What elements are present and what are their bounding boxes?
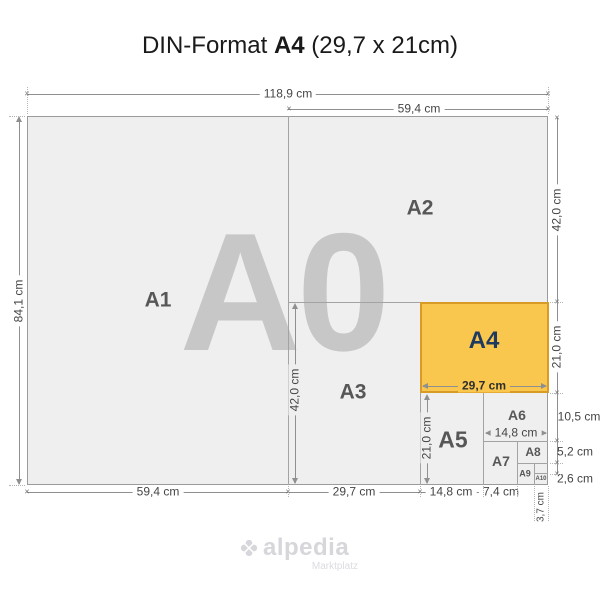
extension-line (534, 486, 535, 521)
extension-line (548, 87, 549, 114)
a1-label: A1 (145, 290, 172, 311)
dim-inner-a5-height: 21,0 cm (420, 413, 433, 464)
logo-name: alpedia (263, 536, 349, 560)
dim-top-width: 118,9 cm (260, 87, 316, 100)
a2-label: A2 (407, 198, 434, 219)
dim-right-a4-height: 21,0 cm (550, 322, 563, 373)
a3-label: A3 (340, 382, 367, 403)
dim-left-height: 84,1 cm (12, 276, 25, 327)
dim-end-icon (24, 488, 29, 497)
a8-label: A8 (525, 446, 540, 458)
dim-inner-a3-height: 42,0 cm (288, 365, 301, 416)
divider-a8-bottom (517, 463, 548, 464)
extension-line (548, 486, 549, 521)
dim-right-a8-height: 5,2 cm (553, 445, 597, 458)
extension-line (517, 486, 518, 497)
dim-bottom-a1-width: 59,4 cm (133, 485, 184, 498)
arrow-right-icon (541, 383, 547, 389)
title-prefix: DIN-Format (142, 32, 274, 59)
dim-top-right-width: 59,4 cm (394, 102, 445, 115)
a5-label: A5 (438, 429, 467, 452)
dim-bottom-a5-width: 14,8 cm (426, 485, 477, 498)
arrow-up-icon (292, 303, 298, 309)
extension-line (483, 486, 484, 497)
page-title: DIN-Format A4 (29,7 x 21cm) (0, 32, 600, 60)
arrow-down-icon (292, 478, 298, 484)
extension-line (550, 474, 563, 475)
dim-end-icon (286, 105, 291, 114)
din-format-diagram: DIN-Format A4 (29,7 x 21cm) A0 A1 A2 A3 … (0, 0, 600, 600)
extension-line (550, 463, 563, 464)
a7-label: A7 (492, 454, 510, 468)
dim-end-icon (554, 114, 559, 123)
divider-a10-bottom (534, 473, 548, 474)
a10-label: A10 (535, 476, 546, 482)
dim-inner-a6-width: 14,8 cm (491, 426, 542, 439)
arrow-down-icon (424, 478, 430, 484)
a9-label: A9 (519, 470, 531, 479)
dim-right-a6-height: 10,5 cm (554, 410, 600, 423)
arrow-up-icon (424, 394, 430, 400)
extension-line (550, 393, 563, 394)
extension-line (550, 441, 563, 442)
divider-a6-bottom (483, 441, 548, 442)
divider-a1-right (288, 116, 289, 485)
a6-label: A6 (508, 408, 526, 422)
alpedia-logo: alpedia Marktplatz (240, 536, 360, 572)
extension-line (288, 486, 289, 497)
extension-line (9, 485, 25, 486)
arrow-left-icon (422, 383, 428, 389)
a4-label: A4 (469, 329, 500, 353)
dim-bottom-a9-width: 3,7 cm (536, 490, 547, 524)
dim-right-a2-height: 42,0 cm (550, 185, 563, 236)
clover-icon (240, 539, 258, 557)
arrow-right-icon (541, 430, 547, 436)
dim-bottom-a3-width: 29,7 cm (329, 485, 380, 498)
extension-line (27, 87, 28, 114)
title-format: A4 (274, 32, 305, 59)
a0-watermark-label: A0 (180, 208, 387, 376)
divider-a5-a6 (483, 393, 484, 485)
extension-line (9, 116, 25, 117)
dim-inner-a4-width: 29,7 cm (458, 379, 510, 392)
extension-line (550, 302, 563, 303)
logo-tagline: Marktplatz (240, 561, 360, 572)
title-size: (29,7 x 21cm) (305, 32, 458, 59)
extension-line (420, 486, 421, 497)
